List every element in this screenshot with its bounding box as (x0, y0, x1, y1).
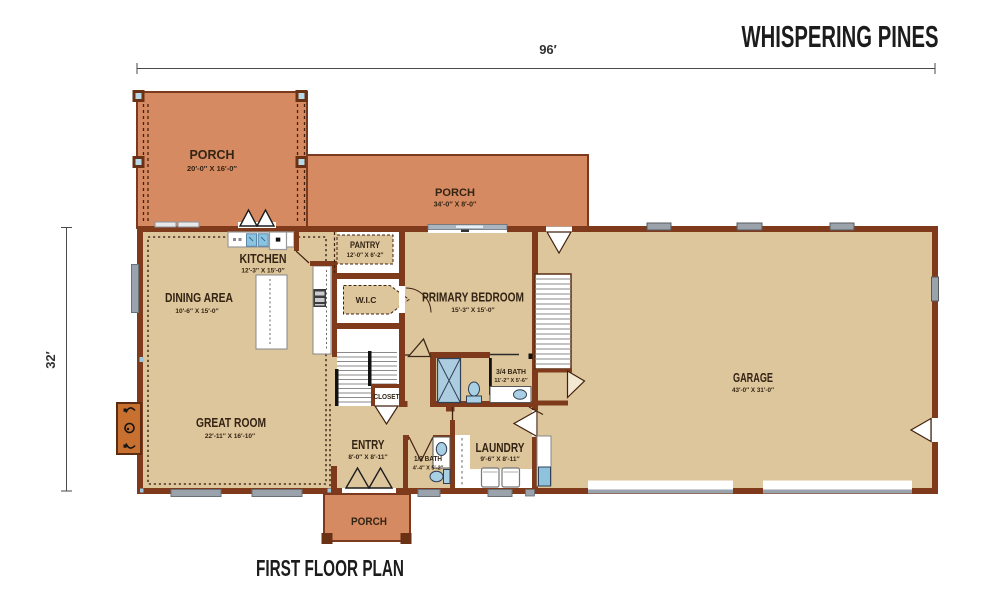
svg-text:15′-3″ X 15′-0″: 15′-3″ X 15′-0″ (451, 307, 494, 314)
svg-text:KITCHEN: KITCHEN (240, 252, 287, 266)
svg-text:22′-11″ X 16′-10″: 22′-11″ X 16′-10″ (205, 433, 255, 440)
svg-text:PORCH: PORCH (190, 147, 235, 162)
svg-text:GARAGE: GARAGE (733, 371, 773, 385)
svg-text:10′-6″ X 15′-0″: 10′-6″ X 15′-0″ (175, 308, 218, 315)
svg-text:34′-0″ X 8′-0″: 34′-0″ X 8′-0″ (434, 202, 477, 209)
svg-text:PORCH: PORCH (435, 187, 475, 199)
svg-text:11′-2″ X 5′-6″: 11′-2″ X 5′-6″ (494, 378, 528, 384)
svg-text:12′-0″ X 6′-2″: 12′-0″ X 6′-2″ (347, 253, 384, 259)
svg-text:PRIMARY BEDROOM: PRIMARY BEDROOM (422, 291, 524, 305)
svg-text:43′-0″ X 31′-0″: 43′-0″ X 31′-0″ (732, 387, 774, 394)
svg-text:9′-6″ X 8′-11″: 9′-6″ X 8′-11″ (480, 456, 519, 463)
svg-text:ENTRY: ENTRY (352, 438, 386, 452)
svg-text:W.I.C: W.I.C (356, 295, 377, 305)
svg-text:DINING AREA: DINING AREA (165, 291, 233, 305)
svg-text:PORCH: PORCH (351, 516, 387, 528)
svg-text:WHISPERING PINES: WHISPERING PINES (742, 19, 939, 54)
svg-text:8′-0″ X 8′-11″: 8′-0″ X 8′-11″ (348, 454, 387, 461)
svg-text:1/2 BATH: 1/2 BATH (414, 456, 442, 463)
svg-text:CLOSET: CLOSET (374, 392, 400, 401)
svg-text:LAUNDRY: LAUNDRY (476, 441, 526, 455)
svg-text:FIRST FLOOR PLAN: FIRST FLOOR PLAN (256, 555, 404, 581)
svg-text:3/4 BATH: 3/4 BATH (496, 367, 526, 376)
svg-text:12′-3″ X 15′-0″: 12′-3″ X 15′-0″ (241, 268, 284, 275)
svg-text:96′: 96′ (539, 42, 557, 57)
svg-text:4′-4″ X 5′-2″: 4′-4″ X 5′-2″ (413, 466, 444, 472)
svg-text:32′: 32′ (43, 351, 58, 369)
svg-text:20′-0″ X 16′-0″: 20′-0″ X 16′-0″ (187, 164, 237, 173)
svg-text:PANTRY: PANTRY (350, 240, 380, 250)
svg-text:GREAT ROOM: GREAT ROOM (196, 416, 266, 430)
